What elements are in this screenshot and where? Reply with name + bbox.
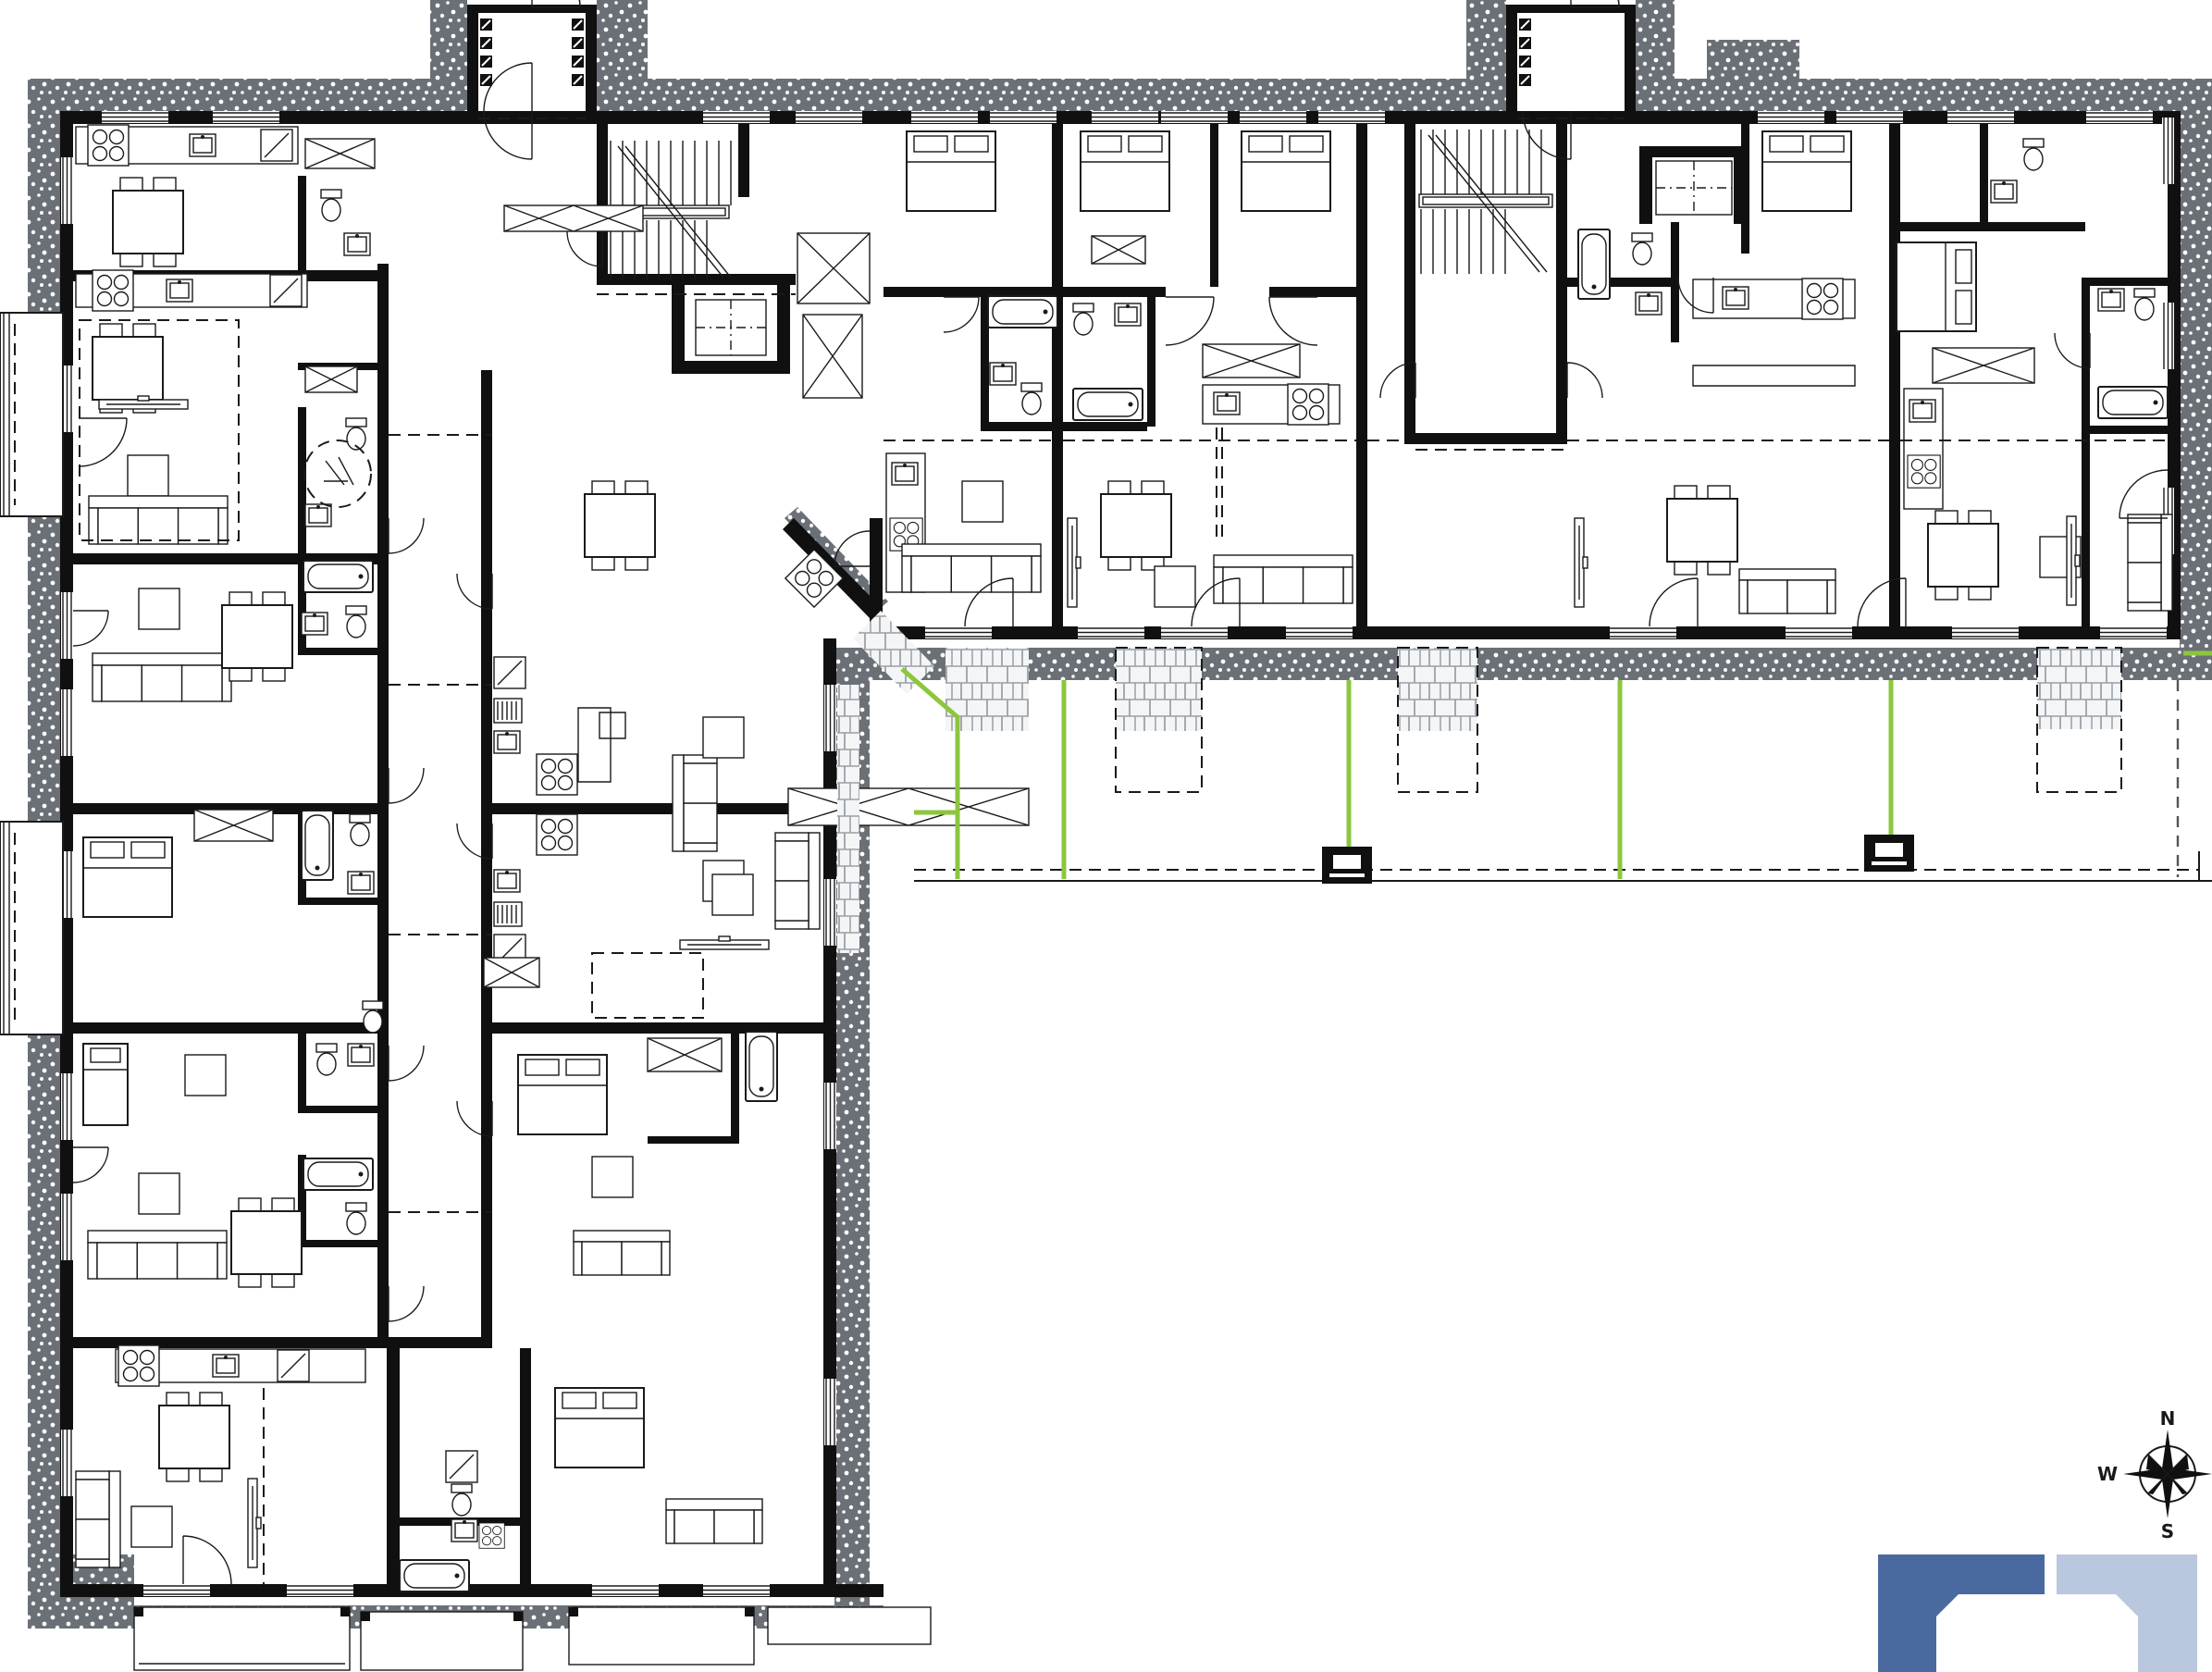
terrace-post [1322, 847, 1372, 884]
door-arc [79, 418, 127, 466]
terrace-post [1864, 835, 1914, 872]
sofa-icon [89, 496, 228, 544]
floor-plan-drawing: N S W E [0, 0, 2212, 1672]
elevator-2 [1656, 161, 1732, 215]
stairwell-2 [1419, 130, 1552, 274]
bay-window-2 [0, 822, 63, 1034]
porch-3 [569, 1607, 754, 1665]
porch-2 [361, 1612, 523, 1670]
dining-table-icon [113, 178, 183, 266]
logo-left-bracket [1878, 1554, 2045, 1672]
bathtub-icon [2098, 387, 2168, 418]
floor-plan-page: N S W E [0, 0, 2212, 1672]
logo-right-bracket [2057, 1554, 2197, 1672]
porch-1 [134, 1607, 350, 1670]
compass-west-label: W [2097, 1463, 2118, 1485]
wheelchair-accessible-icon [304, 440, 371, 507]
elevator-1 [696, 300, 766, 355]
double-bed-icon [518, 1055, 607, 1134]
compass-rose: N S W E [2097, 1407, 2212, 1542]
toilet-icon [321, 190, 341, 221]
double-bed-icon [83, 837, 172, 917]
garden-divider-lines [902, 653, 2212, 879]
developer-logo [1878, 1554, 2197, 1672]
stove-icon [88, 125, 129, 166]
entrance-vestibule-1 [478, 0, 586, 159]
compass-north-label: N [2160, 1407, 2176, 1430]
bay-window-1 [0, 313, 63, 516]
kitchen-sink-icon [190, 134, 216, 156]
compass-south-label: S [2161, 1520, 2174, 1542]
bathtub-icon [303, 561, 373, 592]
porch-4 [768, 1607, 931, 1644]
entrance-vestibule-2 [1517, 0, 1625, 159]
